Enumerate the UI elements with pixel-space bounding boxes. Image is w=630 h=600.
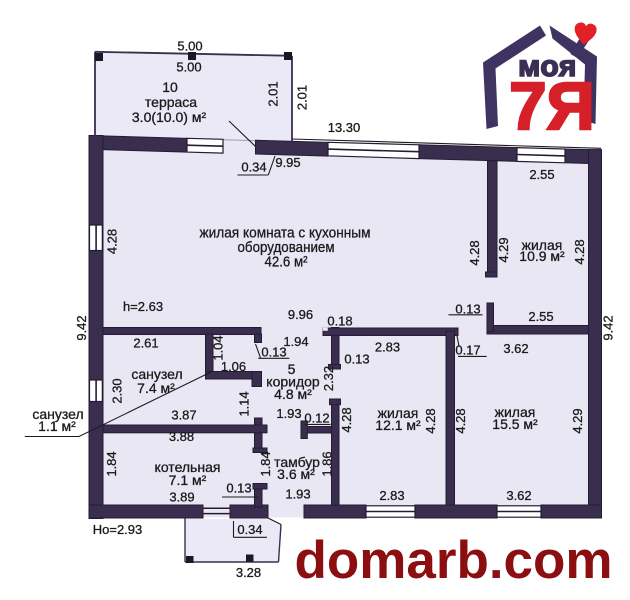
svg-text:2.83: 2.83 <box>379 488 404 503</box>
svg-text:7Я: 7Я <box>509 69 594 144</box>
svg-text:0.34: 0.34 <box>241 160 266 175</box>
svg-text:4.28: 4.28 <box>339 407 354 432</box>
svg-text:4.28: 4.28 <box>423 408 438 433</box>
svg-text:3.89: 3.89 <box>169 490 194 505</box>
svg-text:0.17: 0.17 <box>455 343 480 358</box>
svg-text:2.01: 2.01 <box>266 81 281 106</box>
svg-text:3.62: 3.62 <box>503 341 528 356</box>
svg-text:4.29: 4.29 <box>496 237 511 262</box>
svg-text:2.30: 2.30 <box>110 378 125 403</box>
svg-text:терраса: терраса <box>145 94 197 110</box>
svg-text:2.01: 2.01 <box>295 85 310 110</box>
svg-text:3.87: 3.87 <box>171 408 196 423</box>
svg-text:4.28: 4.28 <box>572 239 587 264</box>
svg-text:7.4 м²: 7.4 м² <box>137 380 175 396</box>
svg-text:15.5 м²: 15.5 м² <box>492 416 538 432</box>
svg-text:1.04: 1.04 <box>211 335 226 360</box>
svg-text:5.00: 5.00 <box>176 60 201 75</box>
svg-text:9.42: 9.42 <box>601 315 616 340</box>
svg-text:1.06: 1.06 <box>221 359 246 374</box>
svg-text:0.13: 0.13 <box>261 345 286 360</box>
svg-text:3.6 м²: 3.6 м² <box>277 466 315 482</box>
svg-text:42.6 м²: 42.6 м² <box>265 254 308 271</box>
svg-text:1.84: 1.84 <box>104 451 119 476</box>
svg-text:1.14: 1.14 <box>237 391 252 416</box>
svg-text:5.00: 5.00 <box>177 39 202 54</box>
svg-text:2.61: 2.61 <box>133 336 158 351</box>
svg-text:3.28: 3.28 <box>236 565 261 580</box>
svg-text:3.88: 3.88 <box>169 429 194 444</box>
svg-text:1.94: 1.94 <box>283 334 308 349</box>
svg-text:1.93: 1.93 <box>285 487 310 502</box>
svg-text:3.0(10.0) м²: 3.0(10.0) м² <box>132 109 207 125</box>
svg-text:3.62: 3.62 <box>506 488 531 503</box>
svg-text:12.1 м²: 12.1 м² <box>375 417 421 433</box>
svg-text:domarb.com: domarb.com <box>294 531 612 590</box>
svg-text:13.30: 13.30 <box>328 120 361 135</box>
svg-text:2.55: 2.55 <box>529 167 554 182</box>
svg-text:h=2.63: h=2.63 <box>123 299 163 314</box>
svg-text:0.12: 0.12 <box>304 411 329 426</box>
svg-text:10.9 м²: 10.9 м² <box>519 248 565 264</box>
svg-text:7.1 м²: 7.1 м² <box>169 472 207 488</box>
svg-text:2.32: 2.32 <box>321 366 336 391</box>
svg-text:4.8 м²: 4.8 м² <box>274 386 312 402</box>
svg-text:4.28: 4.28 <box>105 229 120 254</box>
svg-text:9.95: 9.95 <box>275 155 300 170</box>
svg-text:1.84: 1.84 <box>258 451 273 476</box>
svg-text:9.42: 9.42 <box>74 315 89 340</box>
svg-text:Но=2.93: Но=2.93 <box>93 522 143 537</box>
svg-text:1.93: 1.93 <box>276 406 301 421</box>
svg-text:2.55: 2.55 <box>528 309 553 324</box>
svg-text:4.29: 4.29 <box>570 408 585 433</box>
svg-text:0.13: 0.13 <box>344 352 369 367</box>
svg-text:2.83: 2.83 <box>375 340 400 355</box>
svg-text:0.13: 0.13 <box>226 481 251 496</box>
svg-text:0.34: 0.34 <box>237 522 262 537</box>
svg-text:1.1 м²: 1.1 м² <box>38 418 76 434</box>
svg-text:0.13: 0.13 <box>455 302 480 317</box>
svg-text:4.28: 4.28 <box>453 408 468 433</box>
svg-text:9.96: 9.96 <box>288 307 313 322</box>
svg-text:4.28: 4.28 <box>467 240 482 265</box>
svg-text:0.18: 0.18 <box>327 314 352 329</box>
svg-text:1.86: 1.86 <box>320 451 335 476</box>
svg-text:10: 10 <box>162 79 178 95</box>
